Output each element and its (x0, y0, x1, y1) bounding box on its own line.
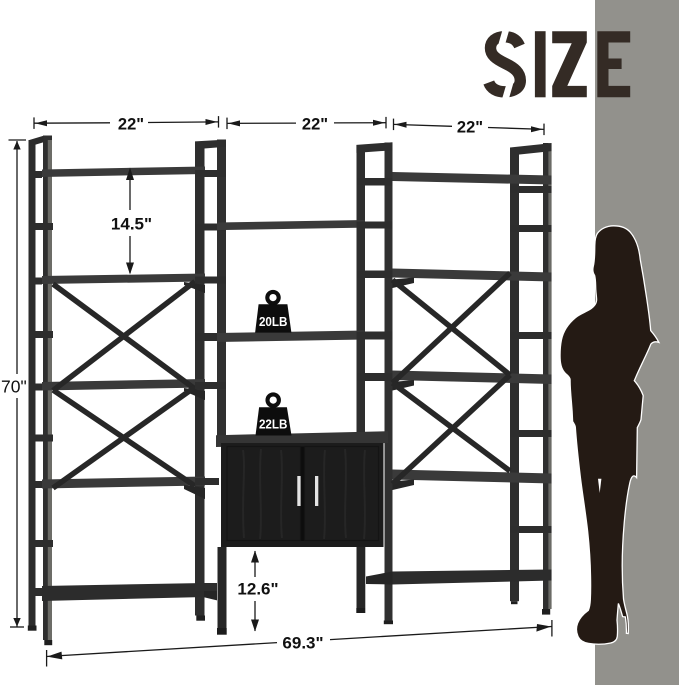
svg-text:70": 70" (1, 377, 27, 397)
svg-text:14.5": 14.5" (111, 215, 152, 234)
svg-text:22": 22" (457, 119, 483, 137)
svg-text:12.6": 12.6" (237, 580, 278, 599)
svg-text:22": 22" (118, 116, 144, 134)
svg-text:22LB: 22LB (259, 418, 288, 432)
svg-text:20LB: 20LB (259, 315, 288, 329)
svg-text:69.3": 69.3" (282, 634, 323, 653)
svg-text:22": 22" (302, 116, 328, 134)
